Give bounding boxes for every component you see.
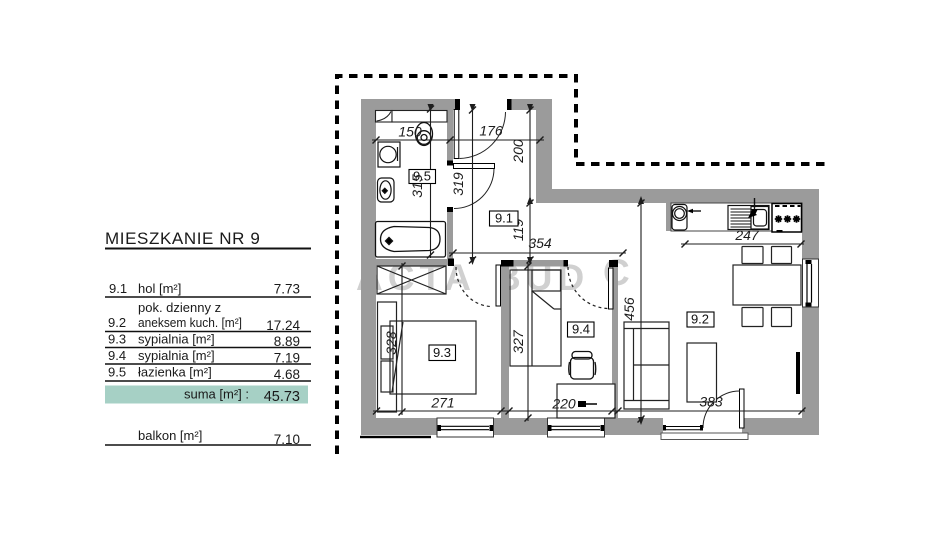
svg-text:327: 327 <box>510 329 526 354</box>
svg-text:315: 315 <box>409 174 425 198</box>
svg-text:9.2: 9.2 <box>691 312 709 327</box>
svg-text:balkon [m²]: balkon [m²] <box>138 428 202 443</box>
svg-text:4.68: 4.68 <box>274 367 300 382</box>
svg-text:9.1: 9.1 <box>495 211 513 226</box>
svg-text:9.4: 9.4 <box>572 322 590 337</box>
svg-text:17.24: 17.24 <box>266 318 300 333</box>
svg-text:MIESZKANIE NR 9: MIESZKANIE NR 9 <box>105 229 260 248</box>
svg-text:150: 150 <box>398 124 422 140</box>
svg-text:200: 200 <box>510 139 526 164</box>
svg-text:9.3: 9.3 <box>433 345 451 360</box>
svg-text:220: 220 <box>551 396 576 412</box>
svg-text:354: 354 <box>528 235 552 251</box>
svg-text:8.89: 8.89 <box>274 334 300 349</box>
svg-text:sypialnia [m²]: sypialnia [m²] <box>138 332 215 347</box>
svg-text:456: 456 <box>621 297 637 321</box>
svg-text:sypialnia [m²]: sypialnia [m²] <box>138 348 215 363</box>
svg-text:271: 271 <box>430 395 454 411</box>
svg-text:pok. dzienny z: pok. dzienny z <box>138 300 221 315</box>
svg-text:9.1: 9.1 <box>109 281 127 296</box>
svg-text:9.5: 9.5 <box>108 365 126 380</box>
svg-text:łazienka [m²]: łazienka [m²] <box>138 365 212 380</box>
svg-text:45.73: 45.73 <box>264 389 300 405</box>
svg-text:C: C <box>603 252 635 293</box>
svg-text:suma [m²] :: suma [m²] : <box>184 387 249 402</box>
svg-text:7.19: 7.19 <box>274 351 300 366</box>
svg-text:328: 328 <box>383 331 399 355</box>
svg-text:9.2: 9.2 <box>108 315 126 330</box>
svg-text:9.4: 9.4 <box>108 348 126 363</box>
svg-text:hol [m²]: hol [m²] <box>138 281 181 296</box>
svg-text:319: 319 <box>450 172 466 196</box>
svg-text:383: 383 <box>699 394 723 410</box>
svg-text:176: 176 <box>479 123 503 139</box>
svg-text:7.73: 7.73 <box>274 282 300 297</box>
svg-text:aneksem kuch. [m²]: aneksem kuch. [m²] <box>138 315 242 330</box>
svg-text:247: 247 <box>734 227 760 243</box>
svg-text:9.3: 9.3 <box>108 332 126 347</box>
